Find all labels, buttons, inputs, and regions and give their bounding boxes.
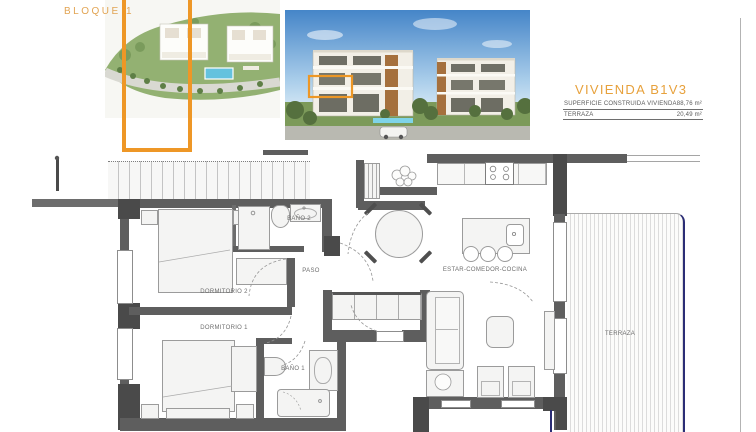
- plant-box: [426, 370, 464, 397]
- wall-pier: [324, 236, 340, 256]
- wall-pier: [413, 397, 429, 432]
- room-label-estar: ESTAR-COMEDOR-COCINA: [443, 267, 527, 273]
- window: [117, 328, 133, 380]
- armchair-seat: [512, 381, 531, 396]
- wall-line: [627, 155, 700, 156]
- wall-segment: [120, 418, 345, 431]
- entry-cabinet: [364, 163, 380, 199]
- walkway-slab-edge: [32, 199, 120, 207]
- wall-segment: [256, 338, 264, 418]
- armchair: [477, 366, 504, 398]
- stool: [497, 246, 513, 262]
- dining-table: [375, 210, 423, 258]
- dining-chair: [419, 250, 432, 263]
- room-label-terraza: TERRAZA: [605, 331, 635, 337]
- hall-closet: [332, 292, 422, 320]
- vanity-sink: [309, 350, 338, 391]
- wall-segment: [323, 330, 376, 342]
- wall-segment: [263, 150, 308, 155]
- tv-unit: [544, 311, 555, 370]
- terrace-edge-line: [550, 410, 552, 432]
- bathtub: [277, 389, 330, 417]
- wall-segment: [427, 154, 627, 163]
- entry-door-leaf: [376, 331, 404, 342]
- wardrobe: [231, 346, 257, 392]
- dresser: [236, 258, 287, 285]
- stool: [480, 246, 496, 262]
- window: [117, 250, 133, 304]
- dining-chair: [364, 250, 377, 263]
- walkway-hatch: [108, 161, 310, 200]
- island-sink: [506, 224, 524, 246]
- sofa-cushion-divider: [436, 329, 458, 330]
- bed-bench: [166, 408, 230, 419]
- bed: [158, 209, 233, 293]
- window: [553, 318, 567, 374]
- nightstand: [141, 210, 158, 225]
- room-label-bano-1: BAÑO 1: [281, 366, 305, 372]
- wall-line: [627, 161, 700, 162]
- lamp-post: [56, 157, 59, 191]
- sink-basin: [314, 357, 332, 384]
- plan-sheet: BLOQUE 1: [0, 0, 756, 432]
- wall-segment: [287, 258, 295, 307]
- nightstand: [141, 404, 159, 419]
- stove: [485, 162, 514, 185]
- wall-segment: [337, 338, 346, 431]
- wall-pier: [118, 199, 140, 219]
- room-label-paso: PASO: [302, 268, 319, 274]
- room-label-dormitorio-2: DORMITORIO 2: [200, 289, 248, 295]
- stool: [463, 246, 479, 262]
- terrace-deck: [567, 213, 685, 432]
- window: [441, 400, 471, 408]
- shower: [238, 206, 270, 250]
- room-label-dormitorio-1: DORMITORIO 1: [200, 325, 248, 331]
- armchair-seat: [481, 381, 500, 396]
- wall-segment: [256, 338, 292, 344]
- bed: [162, 340, 235, 412]
- nightstand: [236, 404, 254, 419]
- wall-pier: [553, 154, 567, 216]
- sofa: [426, 291, 464, 370]
- wall-segment: [129, 307, 292, 315]
- floorplan: DORMITORIO 2 DORMITORIO 1 BAÑO 2 BAÑO 1 …: [0, 0, 756, 432]
- room-label-bano-2: BAÑO 2: [287, 216, 311, 222]
- window: [501, 400, 535, 408]
- window: [553, 222, 567, 302]
- sofa-seat: [435, 297, 460, 364]
- armchair: [508, 366, 535, 398]
- coffee-table: [486, 316, 514, 348]
